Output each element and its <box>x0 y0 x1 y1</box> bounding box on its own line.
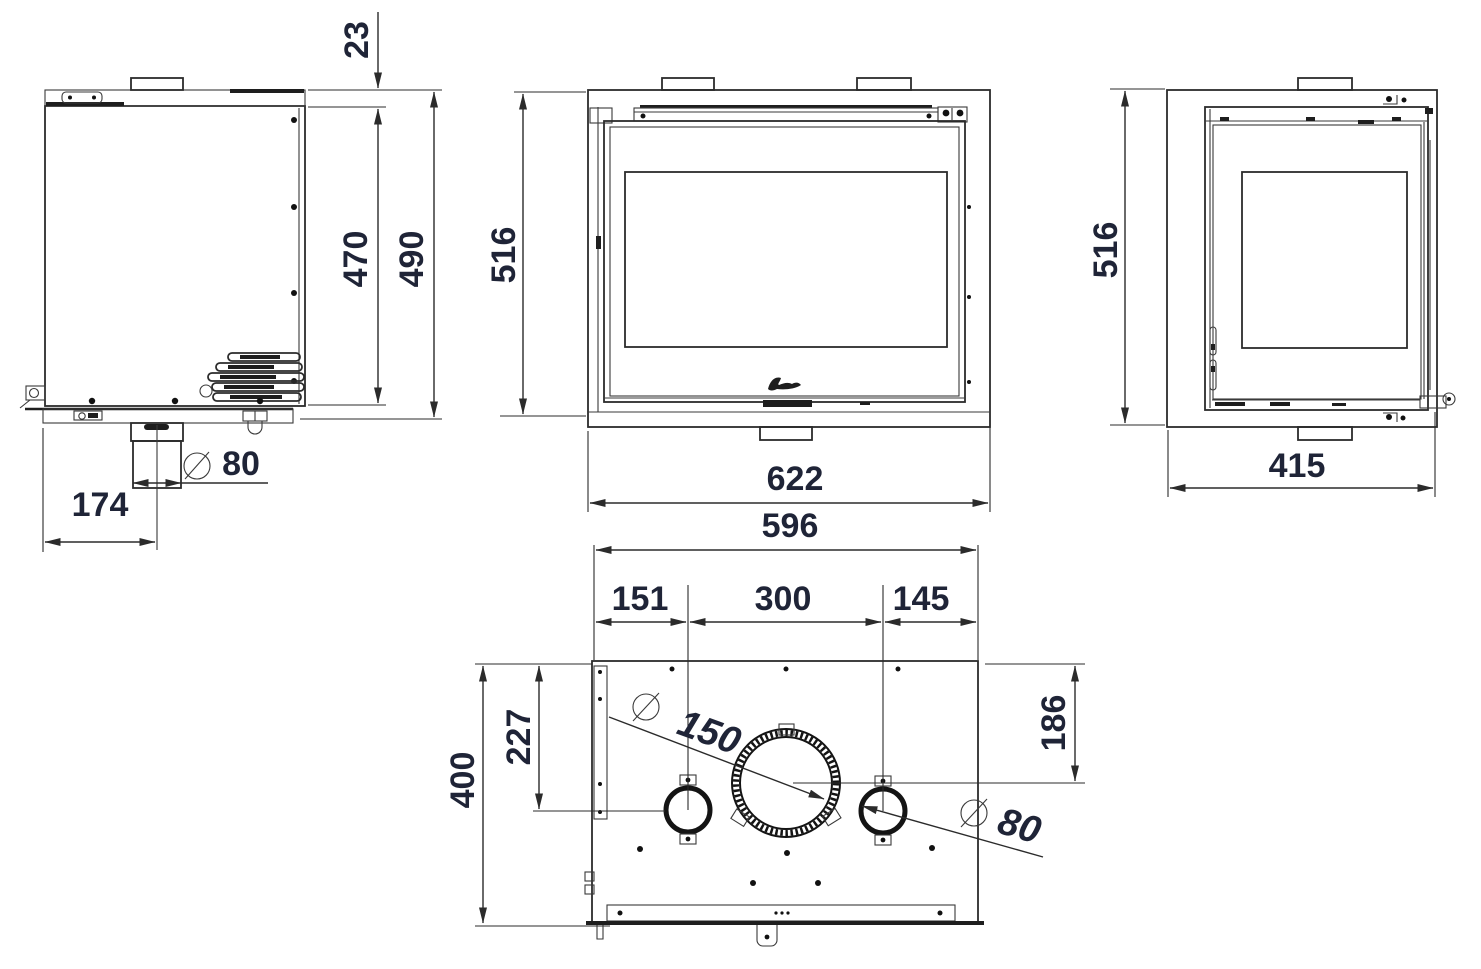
side-top-bracket-screw <box>92 96 96 100</box>
front-frame-hole <box>967 205 971 209</box>
right-door <box>1213 125 1421 399</box>
front-top-bar-screw <box>927 114 932 119</box>
dim-top-right-hole-offset: 145 <box>885 580 976 622</box>
strip-hole <box>598 670 602 674</box>
front-door <box>604 121 965 402</box>
front-frame-hole <box>967 295 971 299</box>
flue-tab <box>731 809 750 826</box>
side-hinge-bracket <box>20 386 45 408</box>
dim-top-width: 596 <box>596 507 976 550</box>
dim-label: 516 <box>1087 222 1125 279</box>
right-outer-frame <box>1167 90 1437 427</box>
right-door-tick <box>1358 120 1374 124</box>
brand-logo <box>768 377 801 390</box>
top-left-strip <box>594 666 607 819</box>
bar-hole <box>618 911 623 916</box>
dim-top-left-hole-offset: 151 <box>596 580 686 622</box>
technical-drawing: 23 470 490 174 80 516 <box>0 0 1481 969</box>
right-side-view <box>1167 78 1455 440</box>
flue-collar-150 <box>731 724 841 837</box>
dim-side-overall-height: 490 <box>393 92 434 417</box>
dim-label: 145 <box>893 580 950 618</box>
side-bottom-clamp-left <box>74 411 102 420</box>
top-front-edge <box>586 921 984 925</box>
strip-hole <box>598 782 602 786</box>
dim-label: 174 <box>72 486 129 524</box>
side-screw-hole <box>291 290 297 296</box>
top-center-tab-hole <box>765 935 770 940</box>
vent-slot-shade <box>220 375 276 379</box>
front-corner-bracket-right <box>938 107 967 122</box>
right-glass <box>1242 172 1407 348</box>
plate-hole <box>784 850 790 856</box>
dim-right-depth: 415 <box>1170 447 1433 488</box>
front-bottom-tick <box>860 402 870 405</box>
front-door-inner <box>610 127 959 396</box>
front-top-bar <box>634 108 938 121</box>
plate-hole <box>750 880 756 886</box>
plate-hole <box>670 667 675 672</box>
front-latch <box>763 400 812 407</box>
dim-label: 470 <box>337 231 375 288</box>
dim-label: 622 <box>767 460 824 498</box>
dim-label: 300 <box>755 580 812 618</box>
vent-knob <box>200 385 212 397</box>
side-bottom-hole <box>89 398 95 404</box>
dim-top-depth: 400 <box>444 666 483 923</box>
right-top-bar-tick <box>1306 117 1315 121</box>
dim-right-height: 516 <box>1087 91 1125 423</box>
dim-label: 490 <box>393 231 431 288</box>
top-left-hook <box>597 925 603 939</box>
dim-label: 400 <box>444 752 482 809</box>
top-plate <box>592 661 978 922</box>
dim-side-duct-offset: 174 <box>45 486 155 542</box>
dim-label: 150 <box>672 702 746 763</box>
side-top-collar <box>131 78 183 90</box>
dim-top-hole-spacing: 300 <box>690 580 881 622</box>
dim-side-body-height: 470 <box>337 109 378 403</box>
right-bottom-tick <box>1332 403 1346 406</box>
side-outlet-duct <box>131 423 183 550</box>
dim-flue-diameter-leader: 150 <box>609 693 824 799</box>
dim-label: 596 <box>762 507 819 545</box>
side-top-flange-seal-right <box>230 89 304 93</box>
plate-hole <box>896 667 901 672</box>
right-hinge-top <box>1425 108 1433 114</box>
side-bottom-hole <box>257 398 263 404</box>
side-view <box>20 78 305 550</box>
bar-hole <box>780 911 783 914</box>
plate-hole <box>929 845 935 851</box>
vent-slot-shade <box>224 385 274 389</box>
dim-label: 23 <box>338 21 376 59</box>
vent-slot-shade <box>240 355 280 359</box>
dim-label: 227 <box>500 709 538 766</box>
right-bottom-screws <box>1383 413 1406 422</box>
front-top-tab-right <box>857 78 911 90</box>
front-glass <box>625 172 947 347</box>
right-bottom-tick <box>1270 402 1290 406</box>
plate-hole <box>815 880 821 886</box>
vent-slot-shade <box>228 365 274 369</box>
right-bottom-tab <box>1298 427 1352 440</box>
drawing-canvas: 23 470 490 174 80 516 <box>0 0 1481 969</box>
strip-hole <box>598 697 602 701</box>
right-vent-mark <box>1211 366 1215 372</box>
side-screw-hole <box>291 117 297 123</box>
front-bottom-tab <box>760 427 812 440</box>
right-vent-mark <box>1211 344 1215 350</box>
side-top-bracket-screw <box>68 96 72 100</box>
right-inner-frame <box>1205 107 1428 410</box>
dim-side-duct-diameter: 80 <box>133 445 268 483</box>
dim-label: 151 <box>612 580 669 618</box>
top-view <box>585 661 984 946</box>
dim-top-hole-center-depth: 227 <box>500 666 539 809</box>
front-hinge-pin <box>596 236 601 249</box>
dim-label: 186 <box>1035 695 1073 752</box>
dim-label: 516 <box>485 227 523 284</box>
front-frame-hole <box>967 380 971 384</box>
dim-label: 80 <box>222 445 260 483</box>
dim-label: 415 <box>1269 447 1326 485</box>
bar-hole <box>786 911 789 914</box>
vent-slot-shade <box>230 395 282 399</box>
dim-front-width: 622 <box>590 460 988 503</box>
front-outer-frame <box>588 90 990 427</box>
dim-outlet-diameter-leader: 80 <box>862 799 1045 857</box>
side-screw-hole <box>291 204 297 210</box>
bar-hole <box>774 911 777 914</box>
dim-front-height: 516 <box>485 94 523 414</box>
right-top-tab <box>1298 78 1352 90</box>
plate-hole <box>637 846 643 852</box>
side-bottom-hole <box>172 398 178 404</box>
right-bottom-tick <box>1215 402 1245 406</box>
right-top-bar-tick <box>1220 117 1229 121</box>
side-vent-louvres <box>200 353 304 401</box>
right-top-bar-tick <box>1392 117 1401 121</box>
dim-top-flue-center-depth: 186 <box>1035 666 1075 781</box>
right-top-screws <box>1383 95 1407 104</box>
front-top-bar-screw <box>641 114 646 119</box>
bar-hole <box>938 911 943 916</box>
dimension-annotations: 23 470 490 174 80 516 <box>43 12 1435 926</box>
front-top-tab-left <box>662 78 714 90</box>
plate-hole <box>784 667 789 672</box>
front-view <box>588 78 990 440</box>
dim-side-flange-offset: 23 <box>338 12 378 88</box>
